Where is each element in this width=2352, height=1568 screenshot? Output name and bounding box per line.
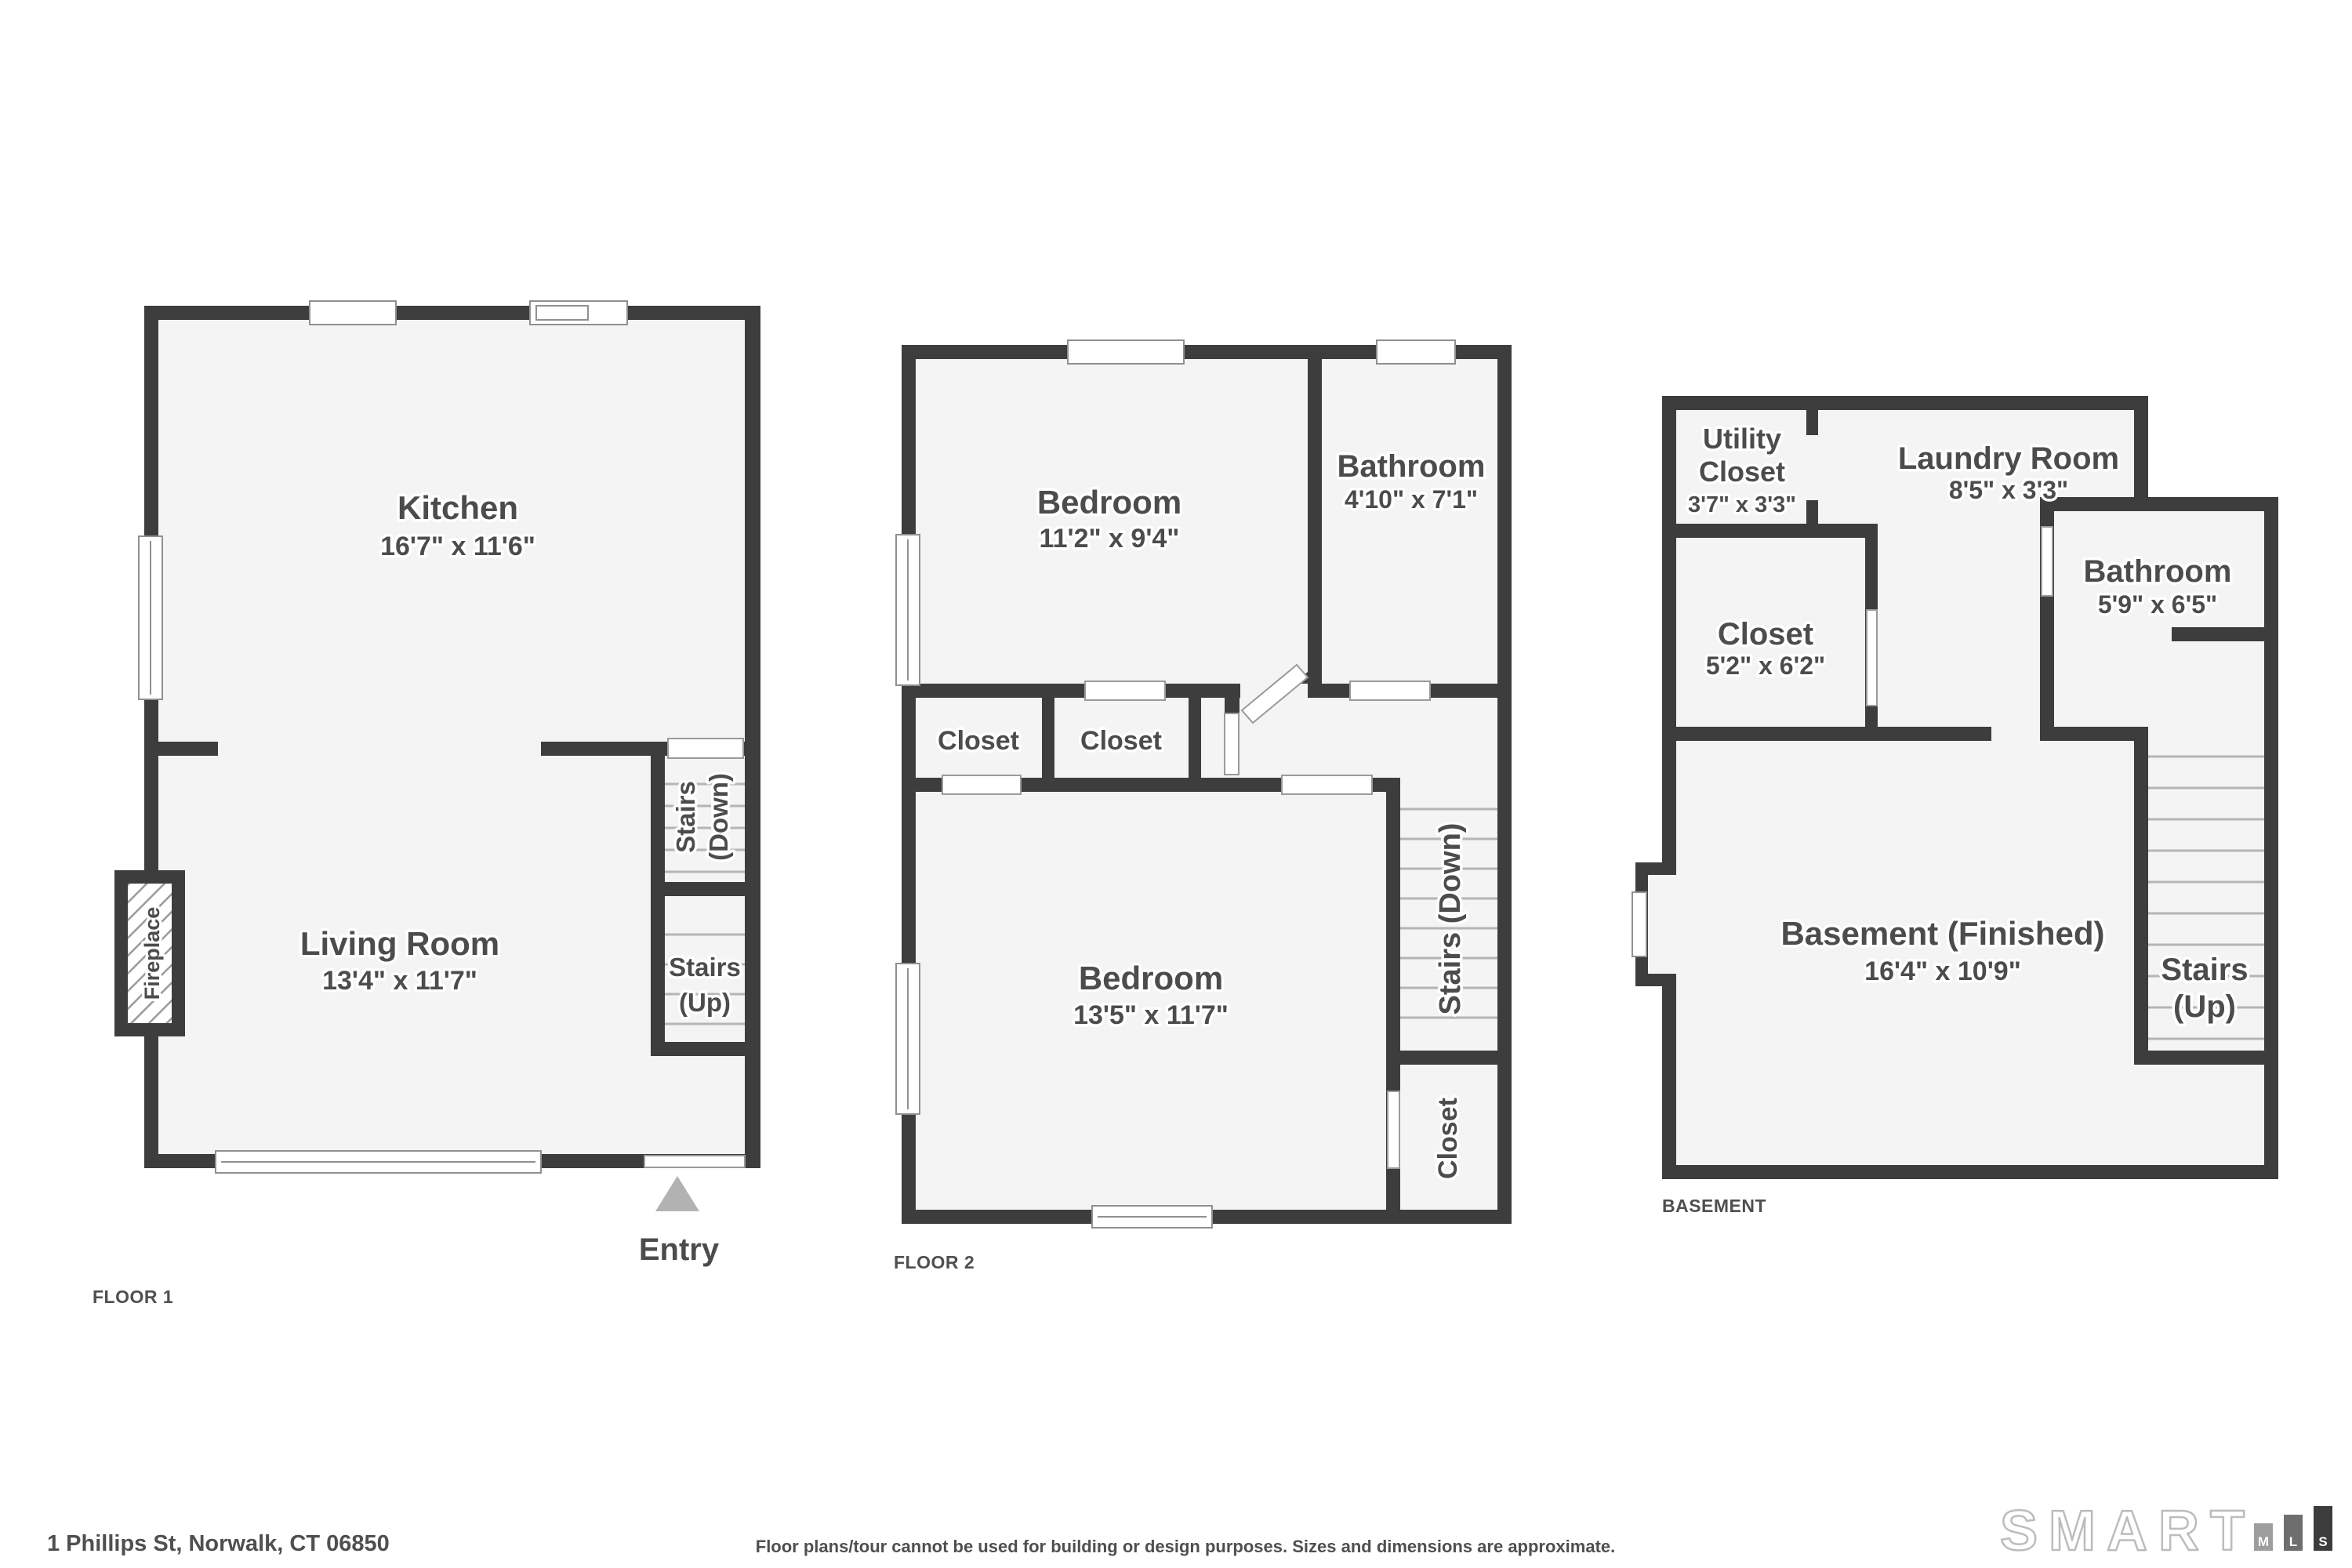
floorplan-page: Stairs (Down) Stairs (Up) Fireplace Kitc… xyxy=(0,0,2352,1568)
floor2-plan: Stairs (Down) Bedroom 11'2" x 9'4" Bathr… xyxy=(894,340,1512,1272)
egress-window xyxy=(1632,892,1646,956)
closet1-label: Closet xyxy=(938,726,1019,756)
kitchen-dims: 16'7" x 11'6" xyxy=(380,532,535,561)
utility-closet-label: Closet xyxy=(1699,456,1785,488)
utility-closet-dims: 3'7" x 3'3" xyxy=(1688,492,1796,517)
basement-closet-label: Closet xyxy=(1718,617,1813,652)
stairs-up-label: Stairs xyxy=(2161,953,2248,987)
basement-plan: Stairs (Up) Utility Closet 3'7" x 3'3" L… xyxy=(1632,396,2278,1216)
laundry-dims: 8'5" x 3'3" xyxy=(1949,476,2068,504)
basement-caption: BASEMENT xyxy=(1662,1196,1766,1216)
basement-main-dims: 16'4" x 10'9" xyxy=(1864,956,2021,986)
window xyxy=(1068,340,1184,364)
bedroom1-dims: 11'2" x 9'4" xyxy=(1040,524,1180,554)
address-text: 1 Phillips St, Norwalk, CT 06850 xyxy=(47,1531,390,1556)
floor1-caption: FLOOR 1 xyxy=(93,1287,173,1307)
entry-marker: Entry xyxy=(639,1176,720,1267)
closet3-door xyxy=(1388,1091,1399,1168)
closet-door xyxy=(1867,610,1877,706)
smartmls-logo: SMART M L S xyxy=(2000,1500,2332,1563)
disclaimer-text: Floor plans/tour cannot be used for buil… xyxy=(756,1537,1616,1556)
bathroom-door xyxy=(1350,681,1430,700)
stairs-down-label: Stairs xyxy=(671,781,700,853)
basement-bathroom-dims: 5'9" x 6'5" xyxy=(2098,590,2217,619)
window xyxy=(1377,340,1455,364)
window xyxy=(310,301,396,325)
basement-floor-area xyxy=(2040,497,2278,741)
closet1-door xyxy=(942,775,1021,794)
logo-word: SMART xyxy=(2000,1500,2256,1563)
fireplace: Fireplace xyxy=(114,870,185,1036)
bedroom2-label: Bedroom xyxy=(1079,960,1223,996)
basement-closet-dims: 5'2" x 6'2" xyxy=(1706,652,1825,680)
floor2-caption: FLOOR 2 xyxy=(894,1252,975,1272)
bedroom2-door xyxy=(1282,775,1372,794)
stairs-down-label: Stairs (Down) xyxy=(1434,823,1467,1015)
logo-letter-l: L xyxy=(2289,1534,2297,1549)
entry-arrow-icon xyxy=(655,1176,699,1211)
fireplace-label: Fireplace xyxy=(140,907,164,1000)
stairs-up-label: (Up) xyxy=(679,988,731,1017)
bathroom-door xyxy=(2042,527,2053,596)
entry-label: Entry xyxy=(639,1232,720,1267)
logo-letter-m: M xyxy=(2258,1534,2269,1549)
closet2-label: Closet xyxy=(1080,726,1162,756)
floor1-floor-area xyxy=(144,306,760,1168)
bedroom2-dims: 13'5" x 11'7" xyxy=(1073,1000,1229,1030)
stairs-up-label: Stairs xyxy=(669,953,741,982)
footer: 1 Phillips St, Norwalk, CT 06850 Floor p… xyxy=(47,1500,2332,1563)
living-room-label: Living Room xyxy=(300,925,499,962)
basement-bathroom-label: Bathroom xyxy=(2084,554,2232,589)
kitchen-label: Kitchen xyxy=(397,489,518,526)
living-room-dims: 13'4" x 11'7" xyxy=(322,966,477,996)
stairs-up-label: (Up) xyxy=(2173,989,2236,1024)
entry-threshold xyxy=(644,1156,745,1167)
bathroom-dims: 4'10" x 7'1" xyxy=(1345,485,1478,514)
floor1-plan: Stairs (Down) Stairs (Up) Fireplace Kitc… xyxy=(93,301,760,1307)
basement-main-label: Basement (Finished) xyxy=(1780,915,2104,952)
stairs-door-opening xyxy=(668,739,743,758)
floorplan-canvas: Stairs (Down) Stairs (Up) Fireplace Kitc… xyxy=(0,0,2352,1568)
window xyxy=(530,301,627,325)
stairs-down-label: (Down) xyxy=(704,773,733,861)
closet3-label: Closet xyxy=(1433,1098,1463,1179)
logo-letter-s: S xyxy=(2318,1534,2327,1549)
utility-closet-label: Utility xyxy=(1703,423,1781,455)
floor1-stairs-down: Stairs (Down) xyxy=(665,739,745,872)
bathroom-label: Bathroom xyxy=(1338,449,1486,484)
closet2-door xyxy=(1085,681,1165,700)
laundry-label: Laundry Room xyxy=(1898,441,2119,476)
bedroom1-label: Bedroom xyxy=(1037,484,1181,521)
hall-door-leaf xyxy=(1225,713,1239,775)
